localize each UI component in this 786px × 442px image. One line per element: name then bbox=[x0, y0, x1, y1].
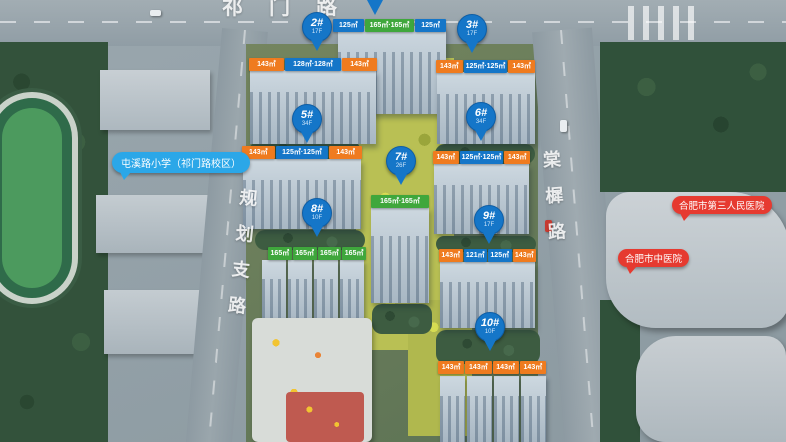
area-tag: 143㎡ bbox=[508, 60, 535, 73]
tower-10d bbox=[521, 376, 546, 442]
area-strip-building-1: 125㎡ 165㎡·165㎡ 125㎡ bbox=[333, 19, 446, 32]
area-tag: 143㎡ bbox=[439, 249, 463, 262]
bubble-tail bbox=[626, 266, 637, 274]
pin-tail bbox=[484, 340, 496, 351]
area-tag: 125㎡·125㎡ bbox=[460, 151, 504, 164]
area-tag: 165㎡ bbox=[268, 247, 292, 260]
pin-tail bbox=[466, 42, 478, 53]
building-pin-2[interactable]: 2#17F bbox=[302, 12, 332, 51]
area-tag: 143㎡ bbox=[438, 361, 464, 374]
area-tag: 165㎡·165㎡ bbox=[365, 19, 414, 32]
pin-tail bbox=[395, 174, 407, 185]
tower-8c bbox=[314, 260, 338, 322]
green-patch bbox=[372, 304, 432, 334]
area-strip-building-9: 143㎡ 121㎡ 125㎡ 143㎡ bbox=[439, 249, 536, 262]
tower-10b bbox=[467, 376, 492, 442]
site-plan-aerial-view: 祁门路 规划支路 棠樨路 2#17F 3#17F 5#34F 6#34F 7#2… bbox=[0, 0, 786, 442]
area-tag: 143㎡ bbox=[329, 146, 362, 159]
area-tag: 165㎡·165㎡ bbox=[371, 195, 429, 208]
poi-bubble-tcm-hospital[interactable]: 合肥市中医院 bbox=[618, 249, 689, 267]
area-tag: 125㎡ bbox=[415, 19, 446, 32]
area-tag: 128㎡·128㎡ bbox=[285, 58, 341, 71]
area-strip-building-2: 143㎡ 128㎡·128㎡ 143㎡ bbox=[249, 58, 377, 71]
road-label-qimen-road: 祁门路 bbox=[222, 0, 363, 21]
tower-7 bbox=[371, 207, 429, 303]
area-tag: 121㎡ bbox=[464, 249, 488, 262]
area-strip-building-10: 143㎡ 143㎡ 143㎡ 143㎡ bbox=[438, 361, 546, 374]
area-tag: 125㎡ bbox=[488, 249, 512, 262]
poi-bubble-school[interactable]: 屯溪路小学（祁门路校区） bbox=[112, 152, 250, 173]
building-pin-3[interactable]: 3#17F bbox=[457, 14, 487, 53]
hospital-building bbox=[636, 336, 786, 442]
area-tag: 143㎡ bbox=[504, 151, 530, 164]
area-tag: 165㎡ bbox=[342, 247, 366, 260]
building-pin-7[interactable]: 7#26F bbox=[386, 146, 416, 185]
building-pin-1-tip[interactable] bbox=[367, 0, 383, 15]
crosswalk bbox=[628, 6, 700, 40]
school-building bbox=[100, 70, 210, 130]
area-tag: 143㎡ bbox=[342, 58, 377, 71]
trees-right bbox=[600, 42, 786, 192]
area-tag: 125㎡·125㎡ bbox=[276, 146, 329, 159]
area-tag: 143㎡ bbox=[493, 361, 519, 374]
bubble-tail bbox=[120, 172, 131, 180]
area-tag: 125㎡ bbox=[333, 19, 364, 32]
tower-8a bbox=[262, 260, 286, 322]
area-tag: 143㎡ bbox=[436, 60, 463, 73]
area-strip-building-7: 165㎡·165㎡ bbox=[371, 195, 429, 208]
building-pin-10[interactable]: 10#10F bbox=[475, 312, 505, 351]
pin-tail bbox=[475, 130, 487, 141]
poi-bubble-third-peoples-hospital[interactable]: 合肥市第三人民医院 bbox=[672, 196, 772, 214]
building-pin-8[interactable]: 8#10F bbox=[302, 198, 332, 237]
school-building bbox=[96, 195, 214, 253]
area-tag: 143㎡ bbox=[249, 58, 284, 71]
area-strip-building-6: 143㎡ 125㎡·125㎡ 143㎡ bbox=[433, 151, 530, 164]
area-tag: 143㎡ bbox=[465, 361, 491, 374]
tower-8d bbox=[340, 260, 364, 322]
kindergarten-annex bbox=[286, 392, 364, 442]
stadium-track bbox=[0, 92, 78, 304]
pin-tail bbox=[311, 40, 323, 51]
tower-10c bbox=[494, 376, 519, 442]
tower-8b bbox=[288, 260, 312, 322]
building-pin-6[interactable]: 6#34F bbox=[466, 102, 496, 141]
pin-tail bbox=[301, 132, 313, 143]
area-strip-building-3: 143㎡ 125㎡·125㎡ 143㎡ bbox=[436, 60, 535, 73]
pin-tail bbox=[311, 226, 323, 237]
building-pin-5[interactable]: 5#34F bbox=[292, 104, 322, 143]
pin-tail bbox=[483, 233, 495, 244]
tower-10a bbox=[440, 376, 465, 442]
car bbox=[150, 10, 161, 16]
building-pin-9[interactable]: 9#17F bbox=[474, 205, 504, 244]
area-tag: 143㎡ bbox=[520, 361, 546, 374]
area-strip-building-5: 143㎡ 125㎡·125㎡ 143㎡ bbox=[242, 146, 362, 159]
area-tag: 165㎡ bbox=[318, 247, 342, 260]
area-strip-building-8: 165㎡ 165㎡ 165㎡ 165㎡ bbox=[268, 247, 366, 260]
area-tag: 125㎡·125㎡ bbox=[464, 60, 508, 73]
bubble-tail bbox=[680, 213, 691, 221]
area-tag: 165㎡ bbox=[293, 247, 317, 260]
area-tag: 143㎡ bbox=[513, 249, 537, 262]
school-building bbox=[104, 290, 208, 354]
car bbox=[560, 120, 567, 132]
area-tag: 143㎡ bbox=[433, 151, 459, 164]
